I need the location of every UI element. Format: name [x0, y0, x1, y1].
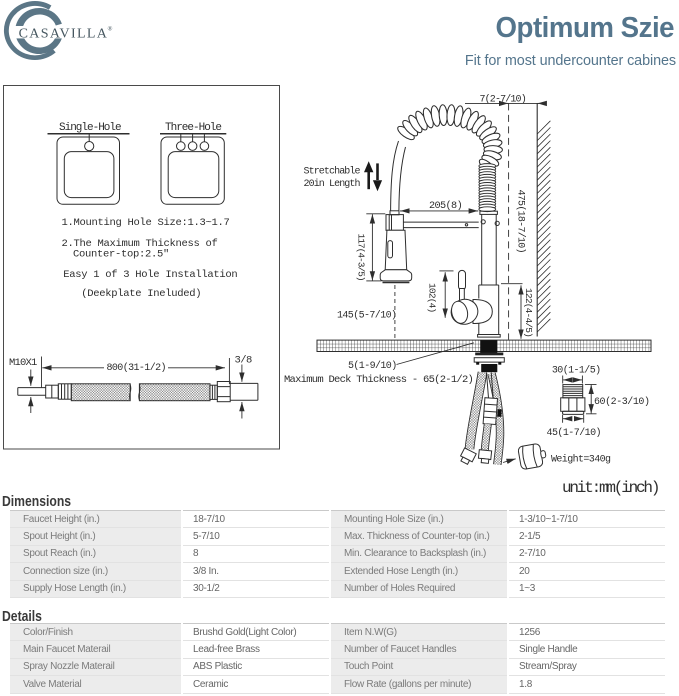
svg-text:7(2-7/10): 7(2-7/10): [480, 94, 526, 106]
svg-text:60(2-3/10): 60(2-3/10): [594, 396, 650, 408]
svg-text:30(1-1/5): 30(1-1/5): [552, 365, 601, 377]
svg-text:205(8): 205(8): [429, 200, 462, 212]
svg-text:Counter-top:2.5″: Counter-top:2.5″: [73, 249, 169, 261]
svg-text:Three-Hole: Three-Hole: [165, 122, 221, 134]
svg-text:117(4-3/5): 117(4-3/5): [355, 234, 366, 281]
svg-text:45(1-7/10): 45(1-7/10): [547, 427, 602, 439]
svg-text:Single-Hole: Single-Hole: [59, 122, 121, 134]
svg-text:102(4): 102(4): [426, 283, 437, 313]
svg-text:20in Length: 20in Length: [304, 178, 361, 190]
svg-text:122(4-4/5): 122(4-4/5): [523, 288, 534, 337]
svg-text:3/8: 3/8: [235, 355, 253, 367]
svg-text:475(18-7/10): 475(18-7/10): [515, 190, 527, 253]
svg-text:Easy 1 of 3 Hole Installation: Easy 1 of 3 Hole Installation: [63, 269, 237, 281]
svg-text:Weight=340g: Weight=340g: [551, 454, 611, 466]
svg-text:145(5-7/10): 145(5-7/10): [337, 310, 396, 322]
svg-text:(Deekplate Ineluded): (Deekplate Ineluded): [81, 288, 201, 300]
svg-text:M10X1: M10X1: [9, 357, 37, 369]
svg-text:800(31-1/2): 800(31-1/2): [107, 362, 166, 374]
svg-text:Stretchable: Stretchable: [304, 166, 361, 178]
svg-text:1.Mounting Hole Size:1.3~1.7: 1.Mounting Hole Size:1.3~1.7: [62, 217, 230, 229]
svg-text:Maximum Deck Thickness - 65(2-: Maximum Deck Thickness - 65(2-1/2): [284, 374, 473, 386]
svg-text:5(1-9/10): 5(1-9/10): [348, 360, 397, 372]
